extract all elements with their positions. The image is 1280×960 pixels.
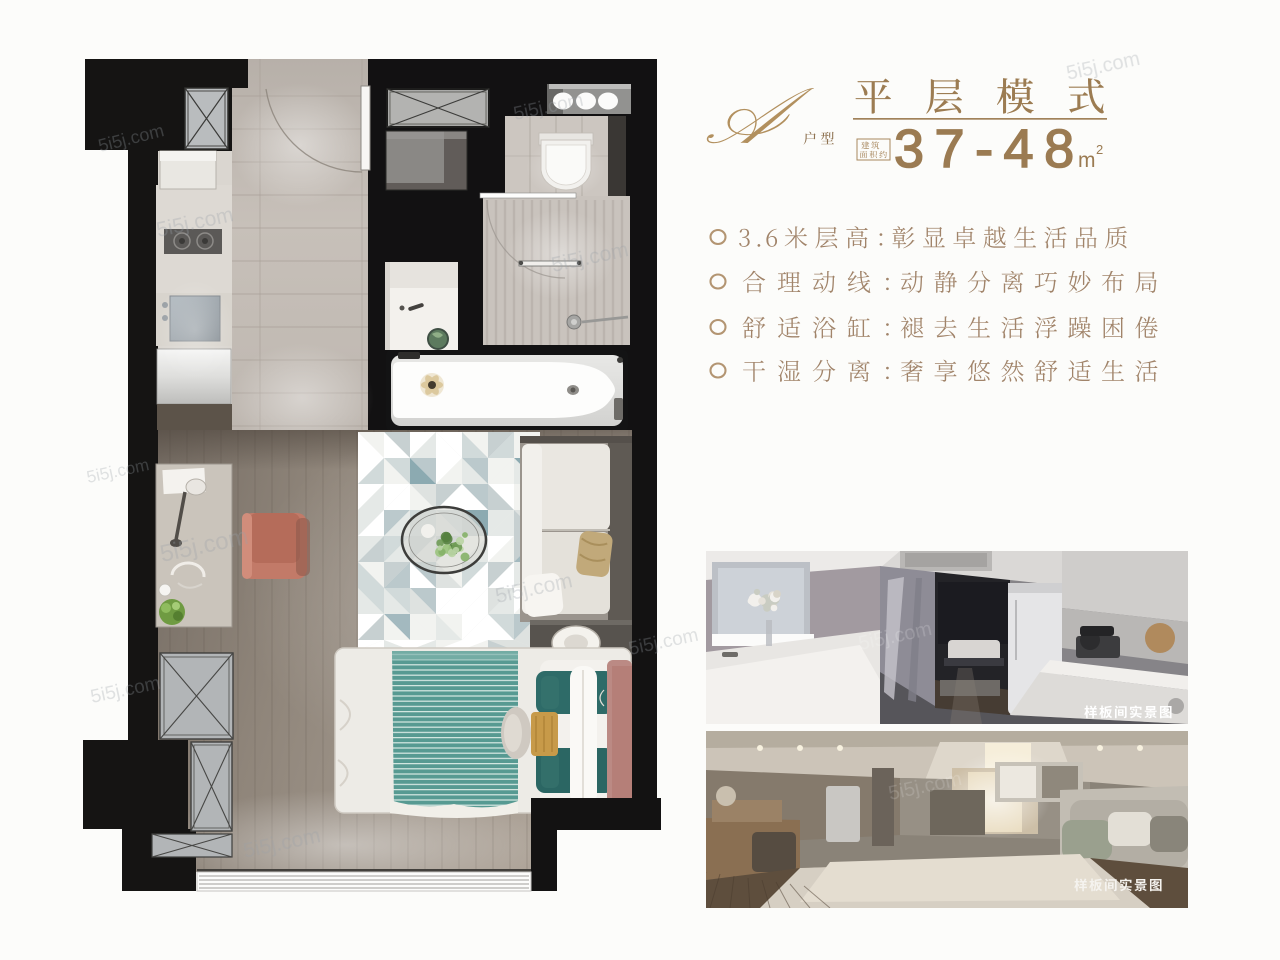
svg-text:37-48: 37-48 [894,119,1085,179]
svg-text:m: m [1078,149,1096,172]
svg-text:2: 2 [1096,142,1103,157]
svg-text:5i5j.com: 5i5j.com [1064,48,1141,85]
